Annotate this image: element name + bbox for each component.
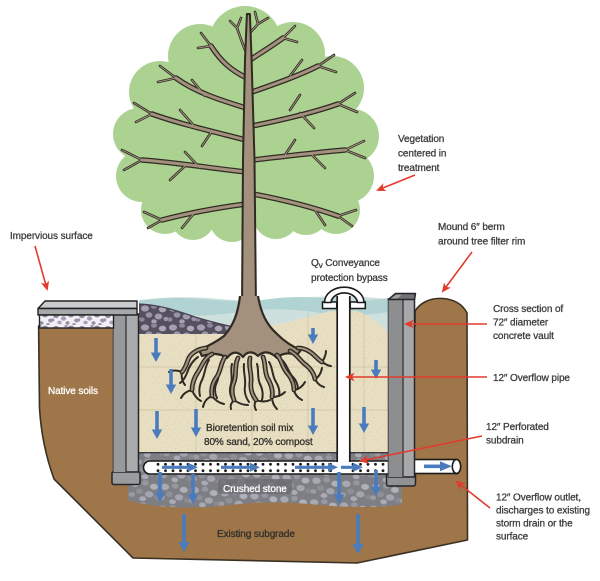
svg-text:Cross section of: Cross section of <box>493 304 563 315</box>
svg-text:Impervious surface: Impervious surface <box>10 231 93 242</box>
svg-text:80% sand, 20% compost: 80% sand, 20% compost <box>204 437 313 448</box>
svg-text:Native soils: Native soils <box>48 386 98 397</box>
svg-text:Existing subgrade: Existing subgrade <box>217 529 295 540</box>
svg-text:treatment: treatment <box>398 163 440 174</box>
svg-text:12″ Overflow outlet,: 12″ Overflow outlet, <box>496 493 581 504</box>
svg-text:around tree filter rim: around tree filter rim <box>438 237 525 248</box>
svg-text:Crushed stone: Crushed stone <box>223 484 287 495</box>
svg-text:surface: surface <box>496 532 529 543</box>
svg-text:Mound 6″ berm: Mound 6″ berm <box>438 222 505 233</box>
svg-text:centered in: centered in <box>398 149 446 160</box>
svg-text:protection bypass: protection bypass <box>311 273 388 284</box>
svg-text:storm drain or the: storm drain or the <box>496 519 573 530</box>
svg-text:discharges to existing: discharges to existing <box>496 506 590 517</box>
svg-text:12″ Overflow pipe: 12″ Overflow pipe <box>493 373 570 384</box>
svg-text:12″ Perforated: 12″ Perforated <box>486 422 549 433</box>
svg-text:Bioretention soil mix: Bioretention soil mix <box>206 423 293 434</box>
svg-text:subdrain: subdrain <box>486 436 524 447</box>
svg-text:72″ diameter: 72″ diameter <box>493 318 549 329</box>
svg-text:concrete vault: concrete vault <box>493 331 554 342</box>
svg-text:Vegetation: Vegetation <box>398 134 444 145</box>
